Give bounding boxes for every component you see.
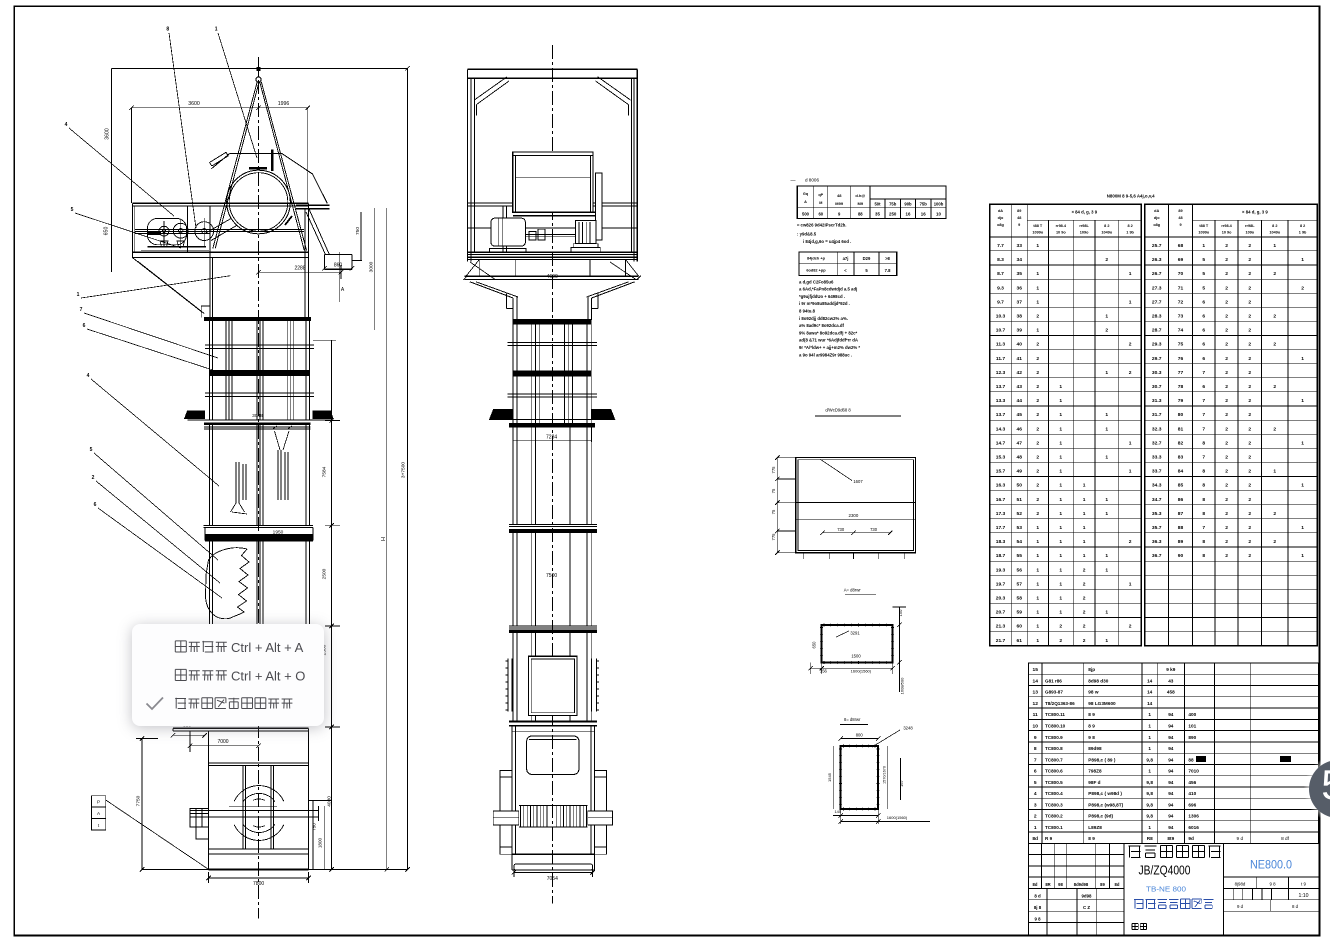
- svg-text:Ctrl + Alt + O: Ctrl + Alt + O: [231, 669, 305, 684]
- svg-text:Ctrl + Alt + A: Ctrl + Alt + A: [231, 640, 304, 655]
